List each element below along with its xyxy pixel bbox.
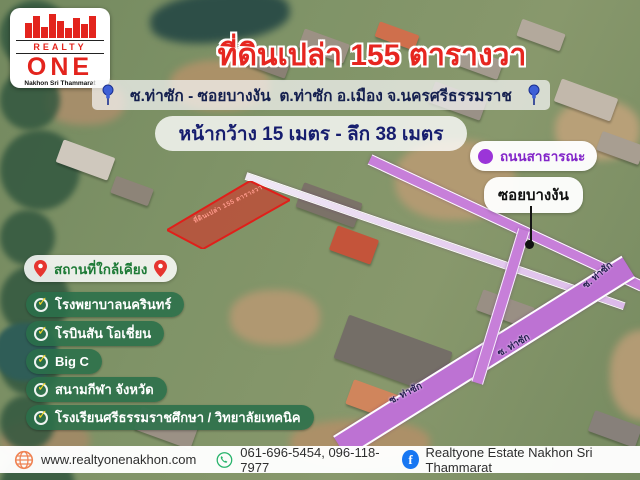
logo-one-text: ONE	[16, 54, 104, 80]
building	[110, 176, 154, 207]
check-icon: ✓	[34, 298, 48, 312]
map-pin-icon	[154, 260, 167, 277]
facebook-group: f Realtyone Estate Nakhon Sri Thammarat	[402, 445, 626, 475]
nearby-item-bigc: ✓ Big C	[26, 349, 102, 374]
nearby-item-label: Big C	[55, 354, 89, 369]
pushpin-icon	[526, 84, 542, 106]
nearby-item-school: ✓ โรงเรียนศรีธรรมราชศึกษา / วิทยาลัยเทคน…	[26, 405, 314, 430]
label-pointer-line	[530, 206, 532, 243]
label-pointer-dot	[525, 240, 534, 249]
phone-group: 061-696-5454, 096-118-7977	[216, 445, 382, 475]
plot-dimensions-banner: หน้ากว้าง 15 เมตร - ลึก 38 เมตร	[155, 116, 467, 151]
website-group: www.realtyonenakhon.com	[14, 450, 196, 470]
nearby-item-robinson: ✓ โรบินสัน โอเชี่ยน	[26, 321, 164, 346]
contact-footer: www.realtyonenakhon.com 061-696-5454, 09…	[0, 446, 640, 473]
nearby-item-label: โรบินสัน โอเชี่ยน	[55, 323, 151, 344]
pushpin-icon	[100, 84, 116, 106]
land-plot-highlight	[167, 181, 290, 249]
globe-icon	[14, 450, 34, 470]
nearby-item-hospital: ✓ โรงพยาบาลนครินทร์	[26, 292, 184, 317]
nearby-places-header: สถานที่ใกล้เคียง	[24, 255, 177, 282]
city-skyline-icon	[16, 13, 104, 38]
map-pin-icon	[34, 260, 47, 277]
logo-realty-text: REALTY	[16, 40, 104, 54]
location-text: ซ.ท่าซัก - ซอยบางงัน ต.ท่าซัก อ.เมือง จ.…	[130, 83, 512, 108]
logo-city-text: Nakhon Sri Thammarat	[16, 80, 104, 87]
check-icon: ✓	[34, 327, 48, 341]
phone-icon	[216, 450, 233, 470]
realty-one-logo: REALTY ONE Nakhon Sri Thammarat	[10, 8, 110, 88]
nearby-item-stadium: ✓ สนามกีฬา จังหวัด	[26, 377, 167, 402]
soi-bang-ngan-label: ซอยบางงัน	[484, 177, 583, 213]
website-text: www.realtyonenakhon.com	[41, 452, 196, 467]
building	[329, 225, 379, 264]
nearby-item-label: โรงพยาบาลนครินทร์	[55, 294, 171, 315]
soi-text: ซอยบางงัน	[498, 183, 569, 207]
nearby-header-text: สถานที่ใกล้เคียง	[54, 258, 147, 280]
location-banner: ซ.ท่าซัก - ซอยบางงัน ต.ท่าซัก อ.เมือง จ.…	[92, 80, 550, 110]
phone-numbers-text: 061-696-5454, 096-118-7977	[240, 445, 382, 475]
dirt-field	[230, 290, 320, 345]
public-road-label: ถนนสาธารณะ	[470, 141, 597, 171]
facebook-icon: f	[402, 450, 418, 469]
check-icon: ✓	[34, 355, 48, 369]
nearby-item-label: โรงเรียนศรีธรรมราชศึกษา / วิทยาลัยเทคนิค	[55, 407, 301, 428]
dirt-field	[610, 330, 640, 420]
purple-dot-icon	[478, 149, 493, 164]
facebook-page-text: Realtyone Estate Nakhon Sri Thammarat	[426, 445, 626, 475]
check-icon: ✓	[34, 383, 48, 397]
public-road-text: ถนนสาธารณะ	[500, 145, 585, 167]
listing-title: ที่ดินเปล่า 155 ตารางวา	[118, 32, 626, 79]
check-icon: ✓	[34, 411, 48, 425]
listing-flyer: ซ. ท่าซัก ซ. ท่าซัก ซ. ท่าซัก ที่ดินเปล่…	[0, 0, 640, 480]
nearby-item-label: สนามกีฬา จังหวัด	[55, 379, 154, 400]
